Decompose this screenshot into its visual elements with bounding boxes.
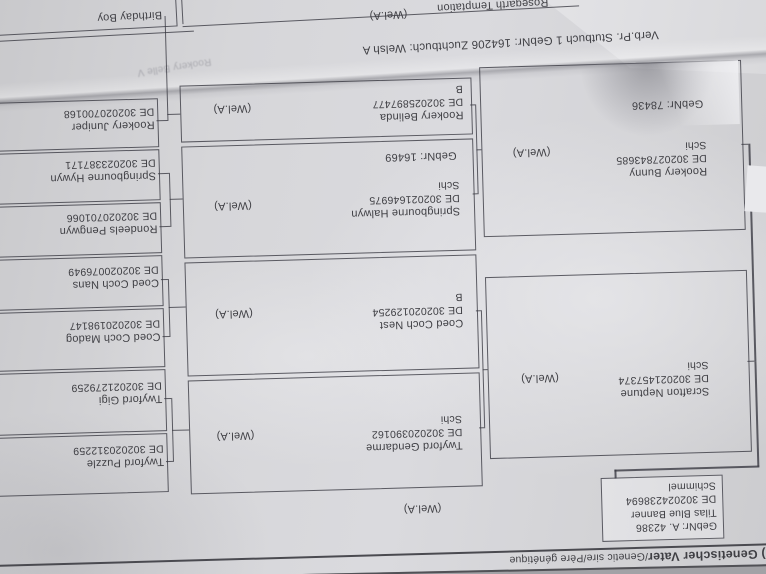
pedigree-box-twyford-gendarme: Twyford Gendarme DE 302020390162 Schi (W… (188, 372, 483, 494)
breed-label: (Wel.A) (193, 306, 253, 321)
section-title-bold: 5) Genetischer Vater (648, 547, 766, 564)
connector-line (156, 120, 167, 121)
connector-line (170, 199, 183, 200)
connector-line (614, 466, 759, 472)
pedigree-box-scrafton-neptune: Scrafton Neptune DE 302021457374 Schi (W… (485, 270, 752, 459)
breed-label: (Wel.A) (499, 370, 559, 385)
connector-line (172, 429, 189, 430)
connector-line (161, 279, 168, 280)
section-title-translation: /Genetic sire/Père génétique (509, 550, 648, 566)
pedigree-box-rookery-bunny: GebNr: 78436 Rookery Bunny DE 3020278436… (479, 60, 746, 237)
pedigree-box-rookery-juniper: Rookery Juniper DE 302020700168 (0, 98, 159, 152)
pedigree-box-twyford-gigi: Twyford Gigi DE 302021279259 (0, 369, 167, 436)
connector-line (476, 310, 481, 311)
subject-info-block: GebNr: A. 42386 Tilas Blue Banner DE 302… (606, 478, 717, 535)
pedigree-box-coed-coch-madog: Coed Coch Madog DE 302020198147 (0, 308, 165, 372)
gebnr-text: GebNr: 16469 (326, 148, 456, 165)
connector-line (747, 361, 754, 362)
connector-line (166, 461, 173, 462)
pedigree-box-tilas-blue-banner: GebNr: A. 42386 Tilas Blue Banner DE 302… (601, 475, 725, 542)
birth-number: GebNr: 16469 (326, 148, 456, 165)
breed-code: (Wel.A) (499, 370, 559, 385)
ancestor-name-block: Scrafton Neptune DE 302021457374 Schi (558, 358, 709, 401)
breed-code: (Wel.A) (193, 306, 253, 321)
gebnr-text: GebNr: 78436 (563, 96, 703, 113)
connector-line (754, 362, 759, 467)
pedigree-box-springbourne-hywyn: Springbourne Hywyn DE 302023387171 (0, 149, 161, 205)
page-curl-highlight (629, 60, 740, 127)
breed-code: (Wel.A) (194, 428, 254, 443)
pedigree-box-springbourne-halwyn: GebNr: 16469 Springbourne Halwyn DE 3020… (181, 138, 476, 258)
connector-line (483, 369, 488, 370)
connector-line (167, 114, 180, 115)
pedigree-box-twyford-puzzle: Twyford Puzzle DE 302020312259 (0, 433, 169, 497)
pedigree-box-coed-coch-nest: Coed Coch Nest DE 302020129254 B (Wel.A) (184, 254, 479, 376)
connector-line (164, 398, 171, 399)
connector-line (169, 307, 186, 308)
paper-edge-tab (744, 165, 766, 212)
breed-code: (Wel.A) (490, 144, 550, 159)
connector-line (741, 144, 748, 145)
connector-line (476, 149, 481, 150)
ancestor-name-block: Springbourne Hywyn DE 302023387171 (0, 155, 156, 186)
ancestor-name-block: Rookery Belinda DE 302025897477 B (323, 82, 464, 125)
ancestor-name-block: Twyford Gigi DE 302021279259 (12, 378, 163, 408)
ancestor-name-block: Rookery Bunny DE 302027843685 Schi (551, 138, 707, 181)
ancestor-name-block: Twyford Puzzle DE 302020312259 (13, 441, 164, 471)
birth-number: GebNr: 78436 (563, 96, 703, 113)
connector-line (473, 193, 478, 194)
breed-label: (Wel.A) (490, 144, 550, 159)
ancestor-name-block: Coed Coch Nans DE 302020076949 (8, 262, 159, 292)
connector-line (470, 104, 475, 105)
ancestor-name-block: Coed Coch Nest DE 302020129254 B (312, 290, 463, 333)
connector-line (159, 226, 170, 227)
ancestor-name-block: Rookery Juniper DE 302020700168 (4, 104, 155, 134)
connector-line (165, 16, 169, 121)
connector-line (162, 336, 169, 337)
breed-label: (Wel.A) (192, 198, 252, 213)
ancestor-name-block: Twyford Gendarme DE 302020390162 Schi (312, 412, 463, 455)
pedigree-box-rondeels-pengwyn: Rondeels Pengwyn DE 302020701066 (0, 202, 162, 258)
ancestor-name-block: Coed Coch Madog DE 302020198147 (10, 316, 161, 346)
breed-code: (Wel.A) (371, 500, 441, 515)
breed-label: (Wel.A) (191, 101, 251, 116)
connector-line (614, 470, 616, 479)
pedigree-document-photo: Birthday Boy (Wel.A) Rosegarth Temptatio… (0, 0, 766, 574)
pedigree-box-rookery-belinda: Rookery Belinda DE 302025897477 B (Wel.A… (179, 77, 472, 142)
breed-code: (Wel.A) (192, 198, 252, 213)
breed-label: (Wel.A) (194, 428, 254, 443)
breed-label: (Wel.A) (371, 500, 441, 515)
sire-pedigree-section: Rookery Juniper DE 302020700168 Springbo… (0, 0, 766, 574)
ancestor-name-block: Rondeels Pengwyn DE 302020701066 (2, 208, 158, 239)
pedigree-box-coed-coch-nans: Coed Coch Nans DE 302020076949 (0, 255, 164, 311)
breed-code: (Wel.A) (191, 101, 251, 116)
connector-line (158, 173, 169, 174)
ancestor-name-block: Springbourne Halwyn DE 302021646975 Schi (299, 178, 460, 221)
connector-line (479, 427, 484, 428)
